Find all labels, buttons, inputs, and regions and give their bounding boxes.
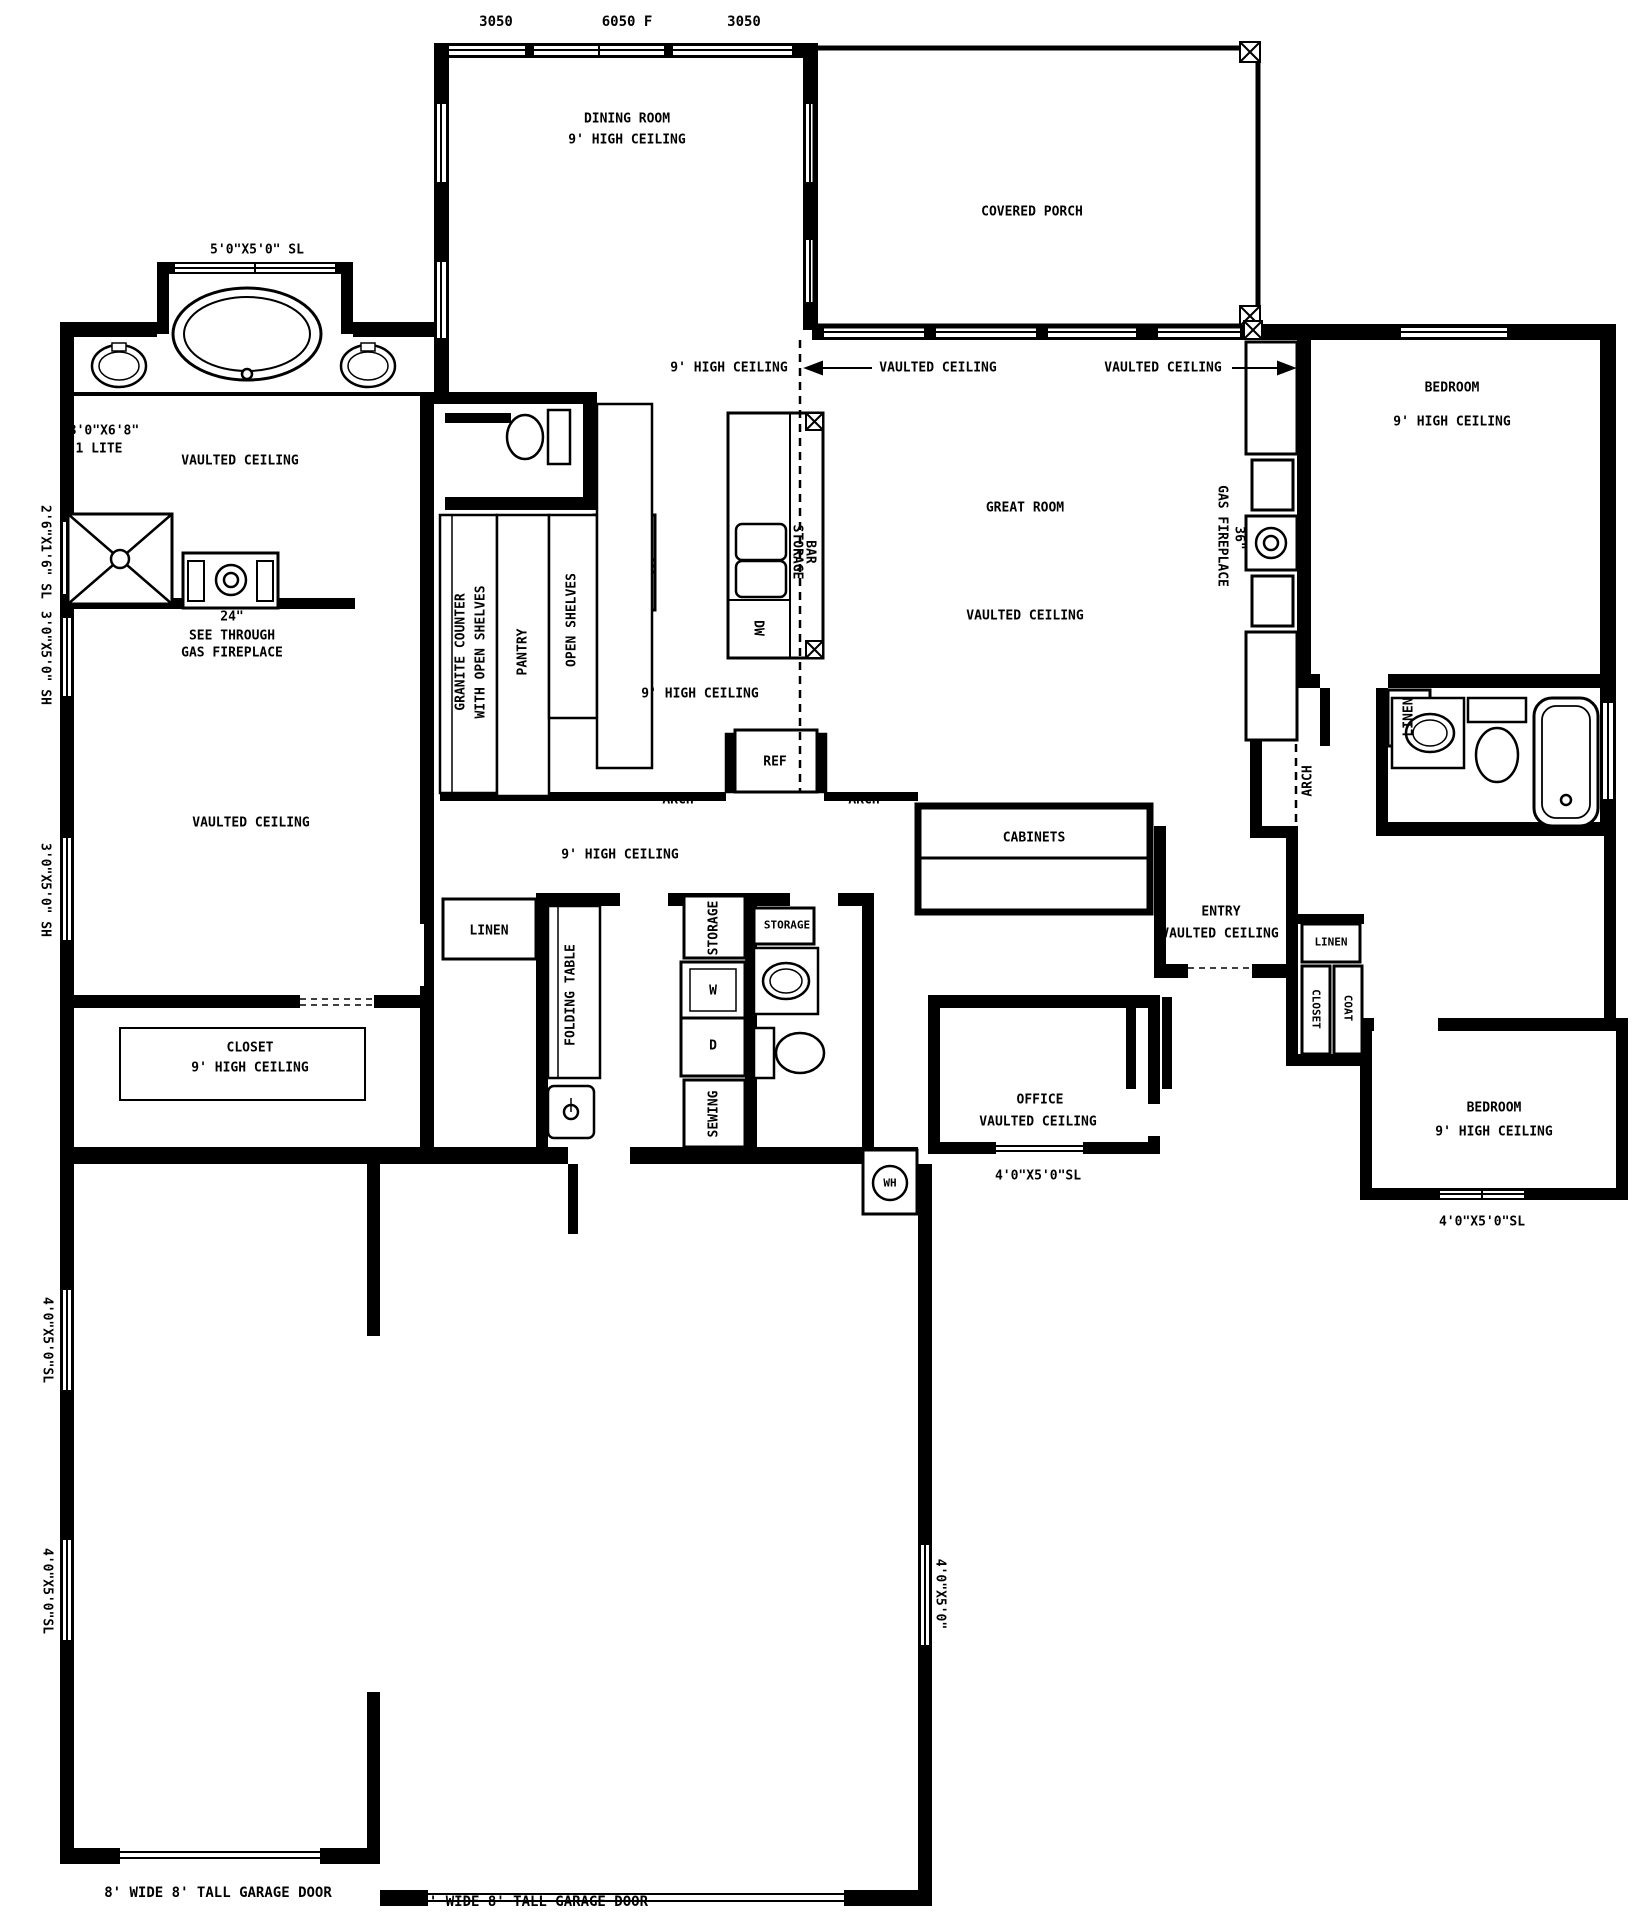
label-win-5x5: 5'0"X5'0" SL — [210, 243, 304, 258]
label-win-3050-1: 3'0"X5'0" SH — [38, 611, 53, 705]
label-closet2: CLOSET — [1310, 989, 1323, 1029]
label-granite-counter: GRANITE COUNTER — [454, 593, 469, 710]
floor-plan: 3050 6050 F 3050 DINING ROOM 9' HIGH CEI… — [0, 0, 1648, 1916]
label-mbed-vaulted: VAULTED CEILING — [192, 816, 309, 831]
label-win-3050-2: 3'0"X5'0" SH — [38, 843, 53, 937]
label-bedroom1: BEDROOM — [1425, 381, 1480, 396]
label-entry-vaulted: VAULTED CEILING — [1161, 927, 1278, 942]
label-entry: ENTRY — [1201, 905, 1240, 920]
label-vaulted-arrow2: VAULTED CEILING — [1104, 361, 1221, 376]
label-laundry-storage: STORAGE — [707, 901, 722, 956]
label-garage-door-8: 8' WIDE 8' TALL GARAGE DOOR — [104, 1885, 332, 1901]
label-coat: COAT — [1342, 995, 1355, 1022]
label-mcloset: CLOSET — [227, 1041, 274, 1056]
label-dryer: D — [709, 1039, 717, 1054]
halfbath-toilet — [754, 1028, 824, 1078]
label-halfbath-storage: STORAGE — [764, 919, 810, 932]
label-linen1: LINEN — [469, 924, 508, 939]
label-kitchen2-ceiling: 9' HIGH CEILING — [641, 687, 758, 702]
label-see-through: SEE THROUGH — [189, 629, 275, 644]
master-sink-left — [92, 343, 146, 387]
label-gas-fireplace1: GAS FIREPLACE — [181, 646, 283, 661]
covered-porch-outline — [815, 48, 1258, 326]
halfbath-vanity — [754, 948, 818, 1014]
label-mcloset-ceiling: 9' HIGH CEILING — [191, 1061, 308, 1076]
dim-3050-left: 3050 — [479, 14, 513, 30]
label-pantry: PANTRY — [516, 629, 531, 676]
label-bedroom1-ceiling: 9' HIGH CEILING — [1393, 415, 1510, 430]
label-door-1lite: 1 LITE — [76, 442, 123, 457]
label-garage-door-18: 18' WIDE 8' TALL GARAGE DOOR — [412, 1894, 648, 1910]
dim-3050-right: 3050 — [727, 14, 761, 30]
laundry-sink — [548, 1086, 594, 1138]
label-arch-2: ARCH — [848, 793, 879, 808]
label-folding-table: FOLDING TABLE — [564, 944, 579, 1046]
label-open-shelves-2: OPEN SHELVES — [565, 573, 580, 667]
label-bedroom3-window: 4'0"X5'0"SL — [1439, 1215, 1525, 1230]
label-hall-ceiling: 9' HIGH CEILING — [561, 848, 678, 863]
label-island-bar: BAR — [803, 540, 818, 563]
label-office-vaulted: VAULTED CEILING — [979, 1115, 1096, 1130]
label-covered-porch: COVERED PORCH — [981, 205, 1083, 220]
label-bedroom3: BEDROOM — [1467, 1101, 1522, 1116]
label-cabinets: CABINETS — [1003, 831, 1066, 846]
label-washer: W — [709, 984, 717, 999]
master-shower — [68, 514, 172, 604]
label-bedroom3-ceiling: 9' HIGH CEILING — [1435, 1125, 1552, 1140]
label-wh: WH — [883, 1177, 896, 1190]
label-garage-win2: 4'0"X5'0"SL — [40, 1548, 55, 1634]
label-kitchen-ceiling: 9' HIGH CEILING — [670, 361, 787, 376]
label-dining-ceiling: 9' HIGH CEILING — [568, 133, 685, 148]
gas-fireplace-36 — [1246, 342, 1297, 740]
label-great-room: GREAT ROOM — [986, 501, 1064, 516]
bath2-tub — [1534, 698, 1598, 826]
label-garage-win1: 4'0"X5'0"SL — [40, 1297, 55, 1383]
label-dining-room: DINING ROOM — [584, 112, 670, 127]
label-sewing: SEWING — [707, 1091, 722, 1138]
kitchen-island — [728, 413, 823, 658]
floorplan-drawing — [0, 0, 1648, 1916]
label-win-2616: 2'6"X1'6" SL — [38, 505, 53, 599]
label-vaulted-arrow1: VAULTED CEILING — [879, 361, 996, 376]
see-through-fireplace — [183, 553, 278, 608]
master-tub — [173, 288, 321, 380]
label-arch-1: ARCH — [662, 793, 693, 808]
cabinets-builtin — [918, 806, 1150, 912]
label-linen2: LINEN — [1402, 697, 1417, 736]
label-fp-24: 24" — [220, 610, 243, 625]
kitchen-counters — [440, 404, 652, 796]
structural-posts — [806, 42, 1262, 658]
label-open-shelves-1: WITH OPEN SHELVES — [474, 585, 489, 718]
label-fp-36: 36" — [1232, 526, 1247, 549]
dim-6050f: 6050 F — [602, 14, 653, 30]
label-ref: REF — [763, 755, 786, 770]
label-greatroom-vaulted: VAULTED CEILING — [966, 609, 1083, 624]
powder-toilet — [507, 410, 570, 464]
label-office-window: 4'0"X5'0"SL — [995, 1169, 1081, 1184]
label-office: OFFICE — [1017, 1093, 1064, 1108]
master-sink-right — [341, 343, 395, 387]
label-mbath-vaulted: VAULTED CEILING — [181, 454, 298, 469]
label-garage-win3: 4'0"X5'0" — [933, 1559, 948, 1629]
label-door-3068: 3'0"X6'8" — [69, 424, 139, 439]
label-linen3: LINEN — [1314, 936, 1347, 949]
label-gas-fireplace2: GAS FIREPLACE — [1215, 485, 1230, 587]
bath2-toilet — [1468, 698, 1526, 782]
label-arch-3: ARCH — [1301, 765, 1316, 796]
label-dw: DW — [751, 620, 766, 636]
